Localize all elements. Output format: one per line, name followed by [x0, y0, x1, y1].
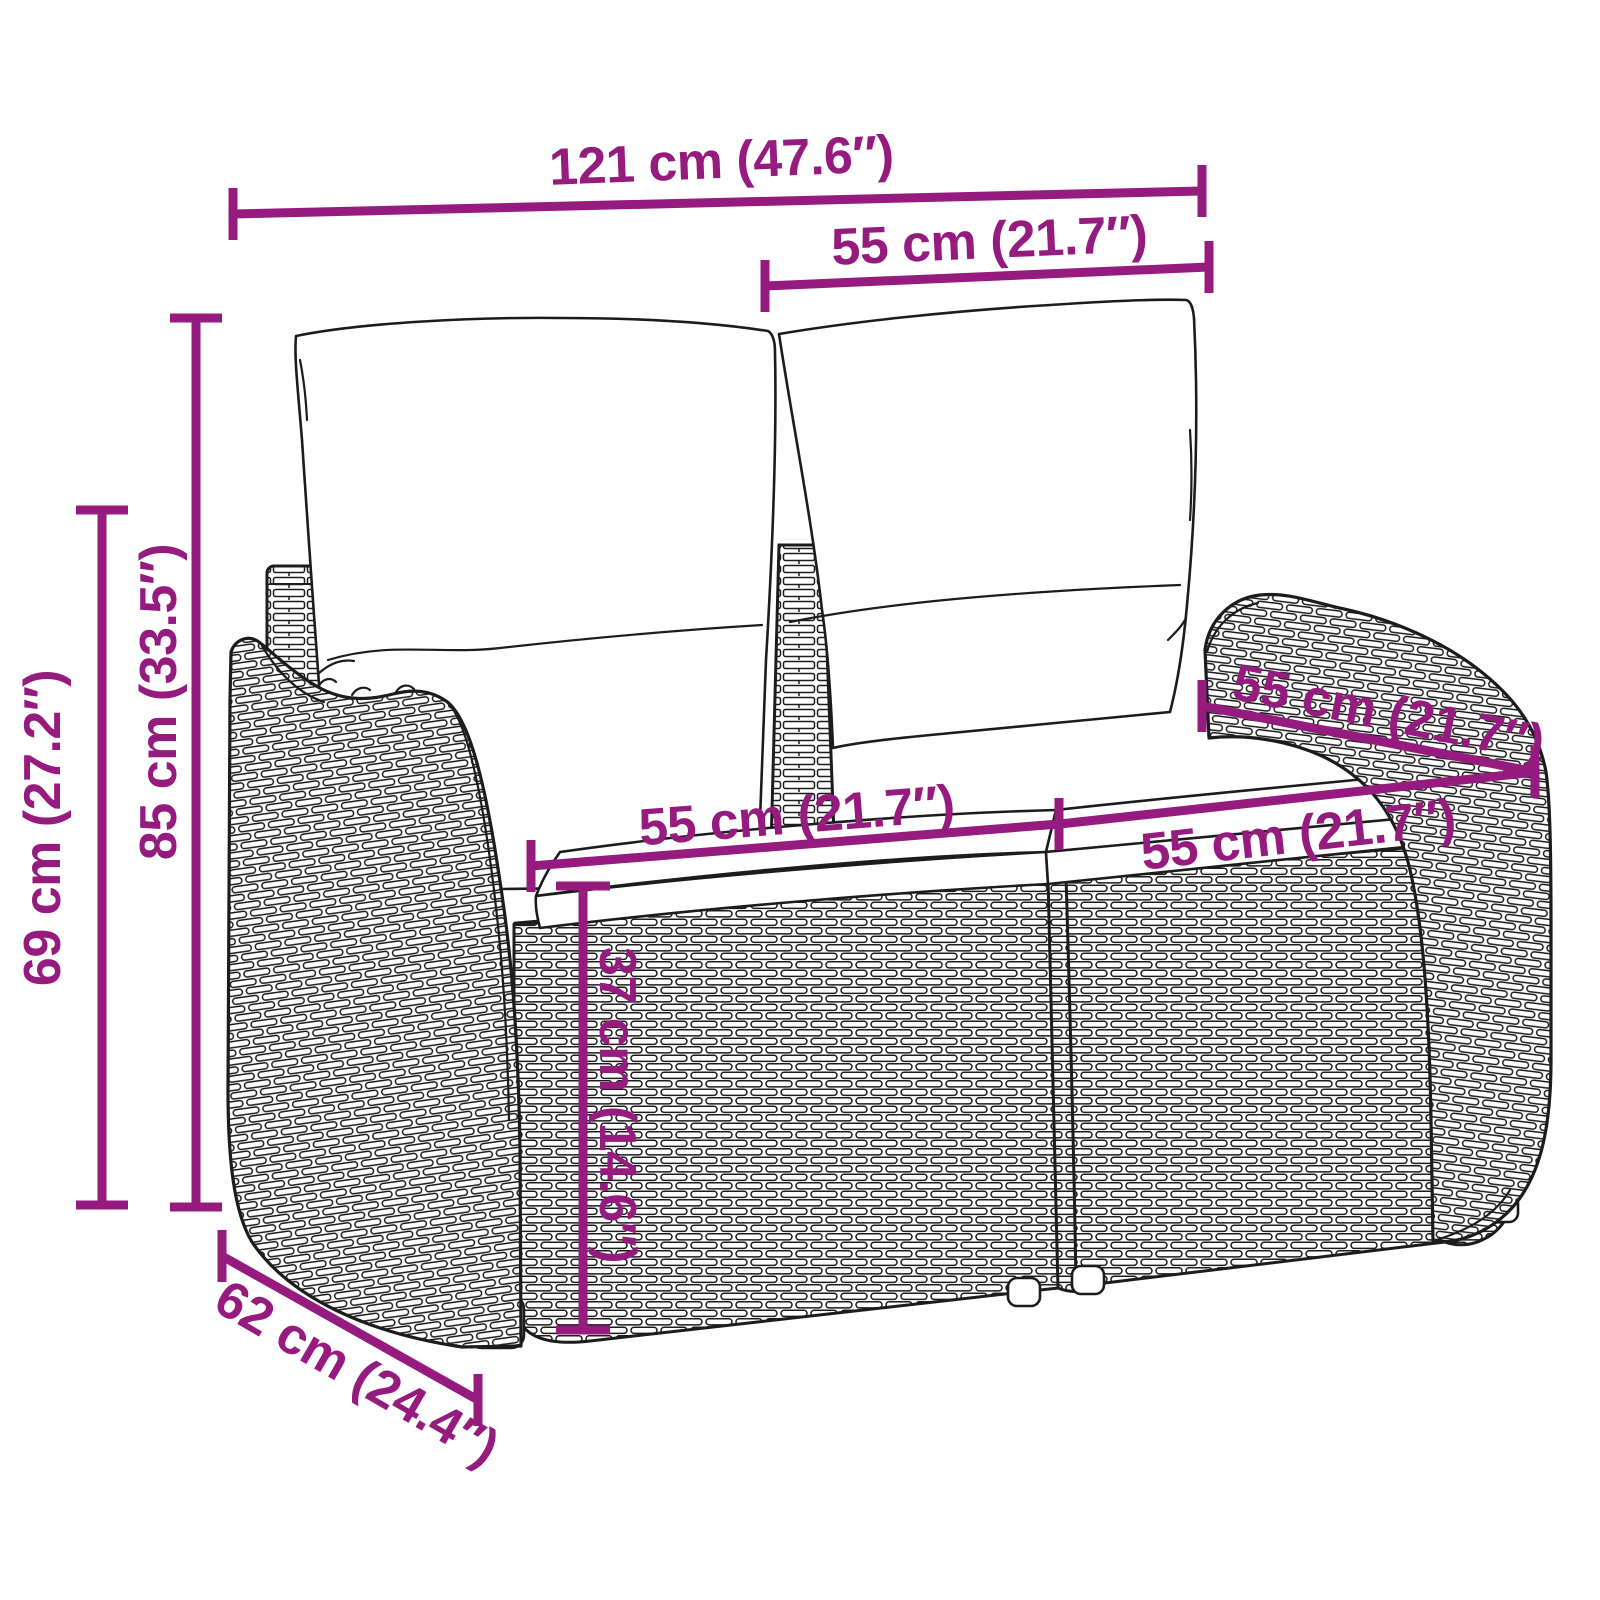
dimension-diagram: 121 cm (47.6″) 55 cm (21.7″) 85 cm (33.5… — [0, 0, 1600, 1600]
sofa-foot — [1008, 1278, 1040, 1306]
back-cushion-right — [779, 300, 1196, 748]
dim-height-armrest-label: 69 cm (27.2″) — [14, 670, 72, 986]
dim-height-armrest-line — [76, 510, 128, 1205]
sofa-foot — [1072, 1266, 1104, 1294]
dim-width-back-section-label: 55 cm (21.7″) — [830, 205, 1148, 277]
dim-height-total-label: 85 cm (33.5″) — [130, 544, 188, 860]
dim-width-total-label: 121 cm (47.6″) — [548, 125, 895, 197]
dim-seat-height-label: 37 cm (14.6″) — [588, 947, 646, 1263]
